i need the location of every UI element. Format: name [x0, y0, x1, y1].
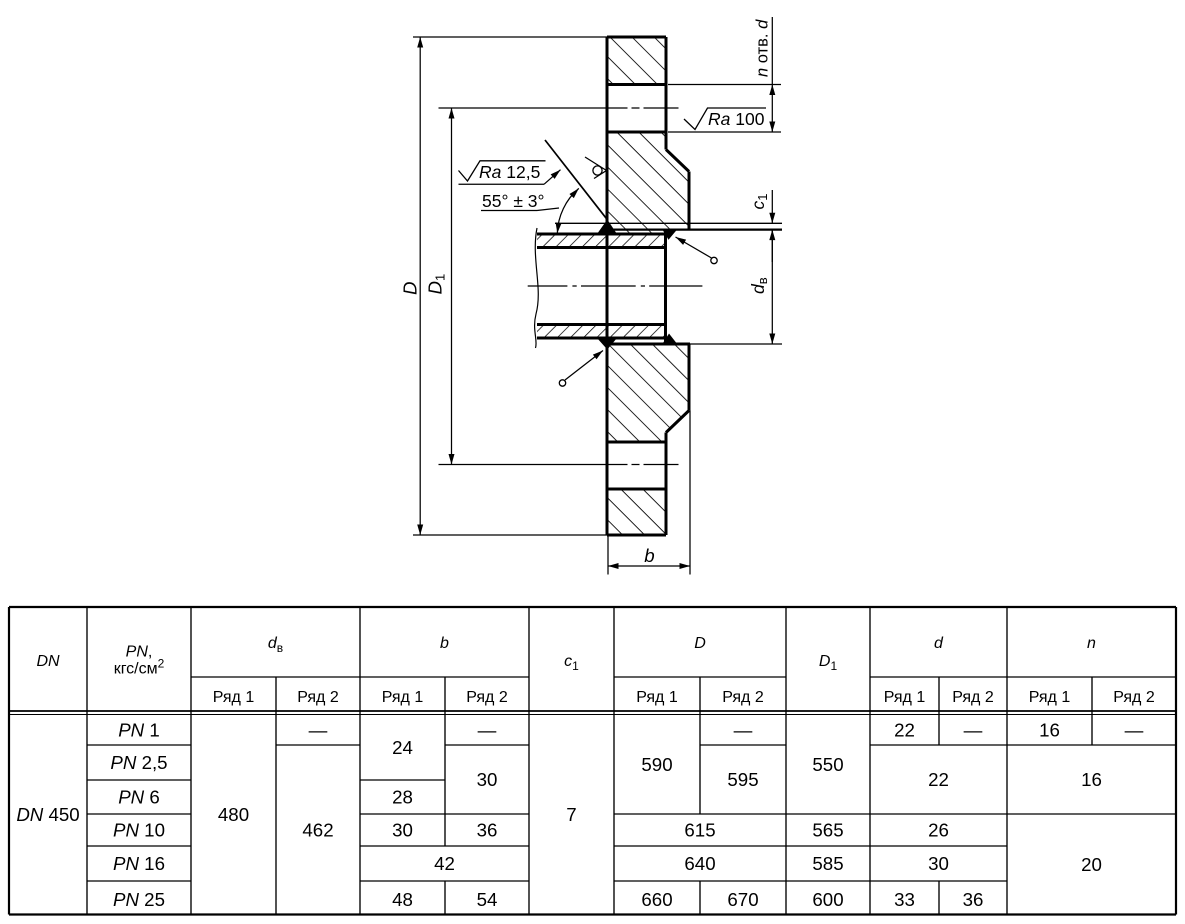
svg-text:DN: DN	[36, 653, 60, 670]
svg-text:480: 480	[218, 804, 249, 825]
svg-text:Ряд 1: Ряд 1	[1029, 689, 1071, 706]
svg-text:590: 590	[641, 754, 672, 775]
svg-text:D1: D1	[819, 653, 838, 673]
svg-text:Ряд 1: Ряд 1	[382, 689, 424, 706]
svg-text:22: 22	[928, 769, 949, 790]
svg-text:22: 22	[894, 719, 915, 740]
svg-text:PN 16: PN 16	[113, 853, 165, 874]
svg-text:48: 48	[392, 889, 413, 910]
svg-text:n отв. d: n отв. d	[754, 19, 772, 77]
svg-text:600: 600	[812, 889, 843, 910]
svg-text:462: 462	[302, 819, 333, 840]
svg-text:Ряд 1: Ряд 1	[884, 689, 926, 706]
svg-text:26: 26	[928, 820, 949, 841]
svg-text:кгс/см2: кгс/см2	[114, 657, 165, 678]
svg-text:Ra 100: Ra 100	[708, 109, 765, 129]
svg-text:PN 25: PN 25	[113, 889, 165, 910]
svg-text:30: 30	[392, 820, 413, 841]
svg-text:Ряд 1: Ряд 1	[636, 689, 678, 706]
svg-text:670: 670	[727, 889, 758, 910]
svg-text:PN 10: PN 10	[113, 820, 165, 841]
svg-text:Ряд 2: Ряд 2	[1113, 689, 1155, 706]
svg-text:Ряд 2: Ряд 2	[297, 689, 339, 706]
svg-text:c1: c1	[564, 653, 579, 673]
svg-text:33: 33	[894, 889, 915, 910]
svg-text:660: 660	[641, 889, 672, 910]
svg-text:D: D	[400, 282, 421, 296]
svg-text:—: —	[964, 719, 983, 740]
svg-text:24: 24	[392, 737, 413, 758]
svg-text:Ряд 2: Ряд 2	[466, 689, 508, 706]
svg-text:7: 7	[566, 804, 576, 825]
svg-text:—: —	[309, 719, 328, 740]
svg-text:PN 2,5: PN 2,5	[110, 752, 167, 773]
svg-text:n: n	[1087, 635, 1096, 652]
svg-text:c1: c1	[748, 194, 770, 210]
svg-text:d: d	[934, 635, 944, 652]
svg-text:565: 565	[812, 820, 843, 841]
svg-text:D: D	[694, 635, 706, 652]
svg-text:DN 450: DN 450	[16, 804, 79, 825]
svg-text:550: 550	[812, 754, 843, 775]
svg-text:30: 30	[477, 769, 498, 790]
svg-text:dв: dв	[748, 277, 770, 294]
svg-text:640: 640	[684, 853, 715, 874]
svg-text:615: 615	[684, 820, 715, 841]
svg-text:—: —	[734, 719, 753, 740]
svg-text:55° ± 3°: 55° ± 3°	[482, 191, 545, 211]
svg-text:b: b	[644, 545, 654, 566]
svg-text:30: 30	[928, 853, 949, 874]
svg-text:b: b	[440, 635, 449, 652]
svg-text:—: —	[478, 719, 497, 740]
svg-text:42: 42	[434, 853, 455, 874]
svg-text:Ряд 1: Ряд 1	[213, 689, 255, 706]
svg-text:595: 595	[727, 769, 758, 790]
svg-text:dв: dв	[268, 635, 283, 655]
svg-text:54: 54	[477, 889, 498, 910]
svg-text:16: 16	[1039, 719, 1060, 740]
svg-text:Ряд 2: Ряд 2	[722, 689, 764, 706]
svg-text:16: 16	[1081, 769, 1102, 790]
svg-text:36: 36	[477, 820, 498, 841]
svg-text:36: 36	[963, 889, 984, 910]
svg-text:—: —	[1125, 719, 1144, 740]
svg-text:Ряд 2: Ряд 2	[952, 689, 994, 706]
svg-text:PN 1: PN 1	[118, 719, 160, 740]
svg-text:D1: D1	[425, 274, 448, 295]
svg-text:20: 20	[1081, 854, 1102, 875]
svg-text:PN 6: PN 6	[118, 787, 160, 808]
svg-text:585: 585	[812, 853, 843, 874]
svg-text:28: 28	[392, 787, 413, 808]
svg-text:PN,: PN,	[126, 643, 153, 660]
svg-text:Ra 12,5: Ra 12,5	[479, 162, 540, 182]
